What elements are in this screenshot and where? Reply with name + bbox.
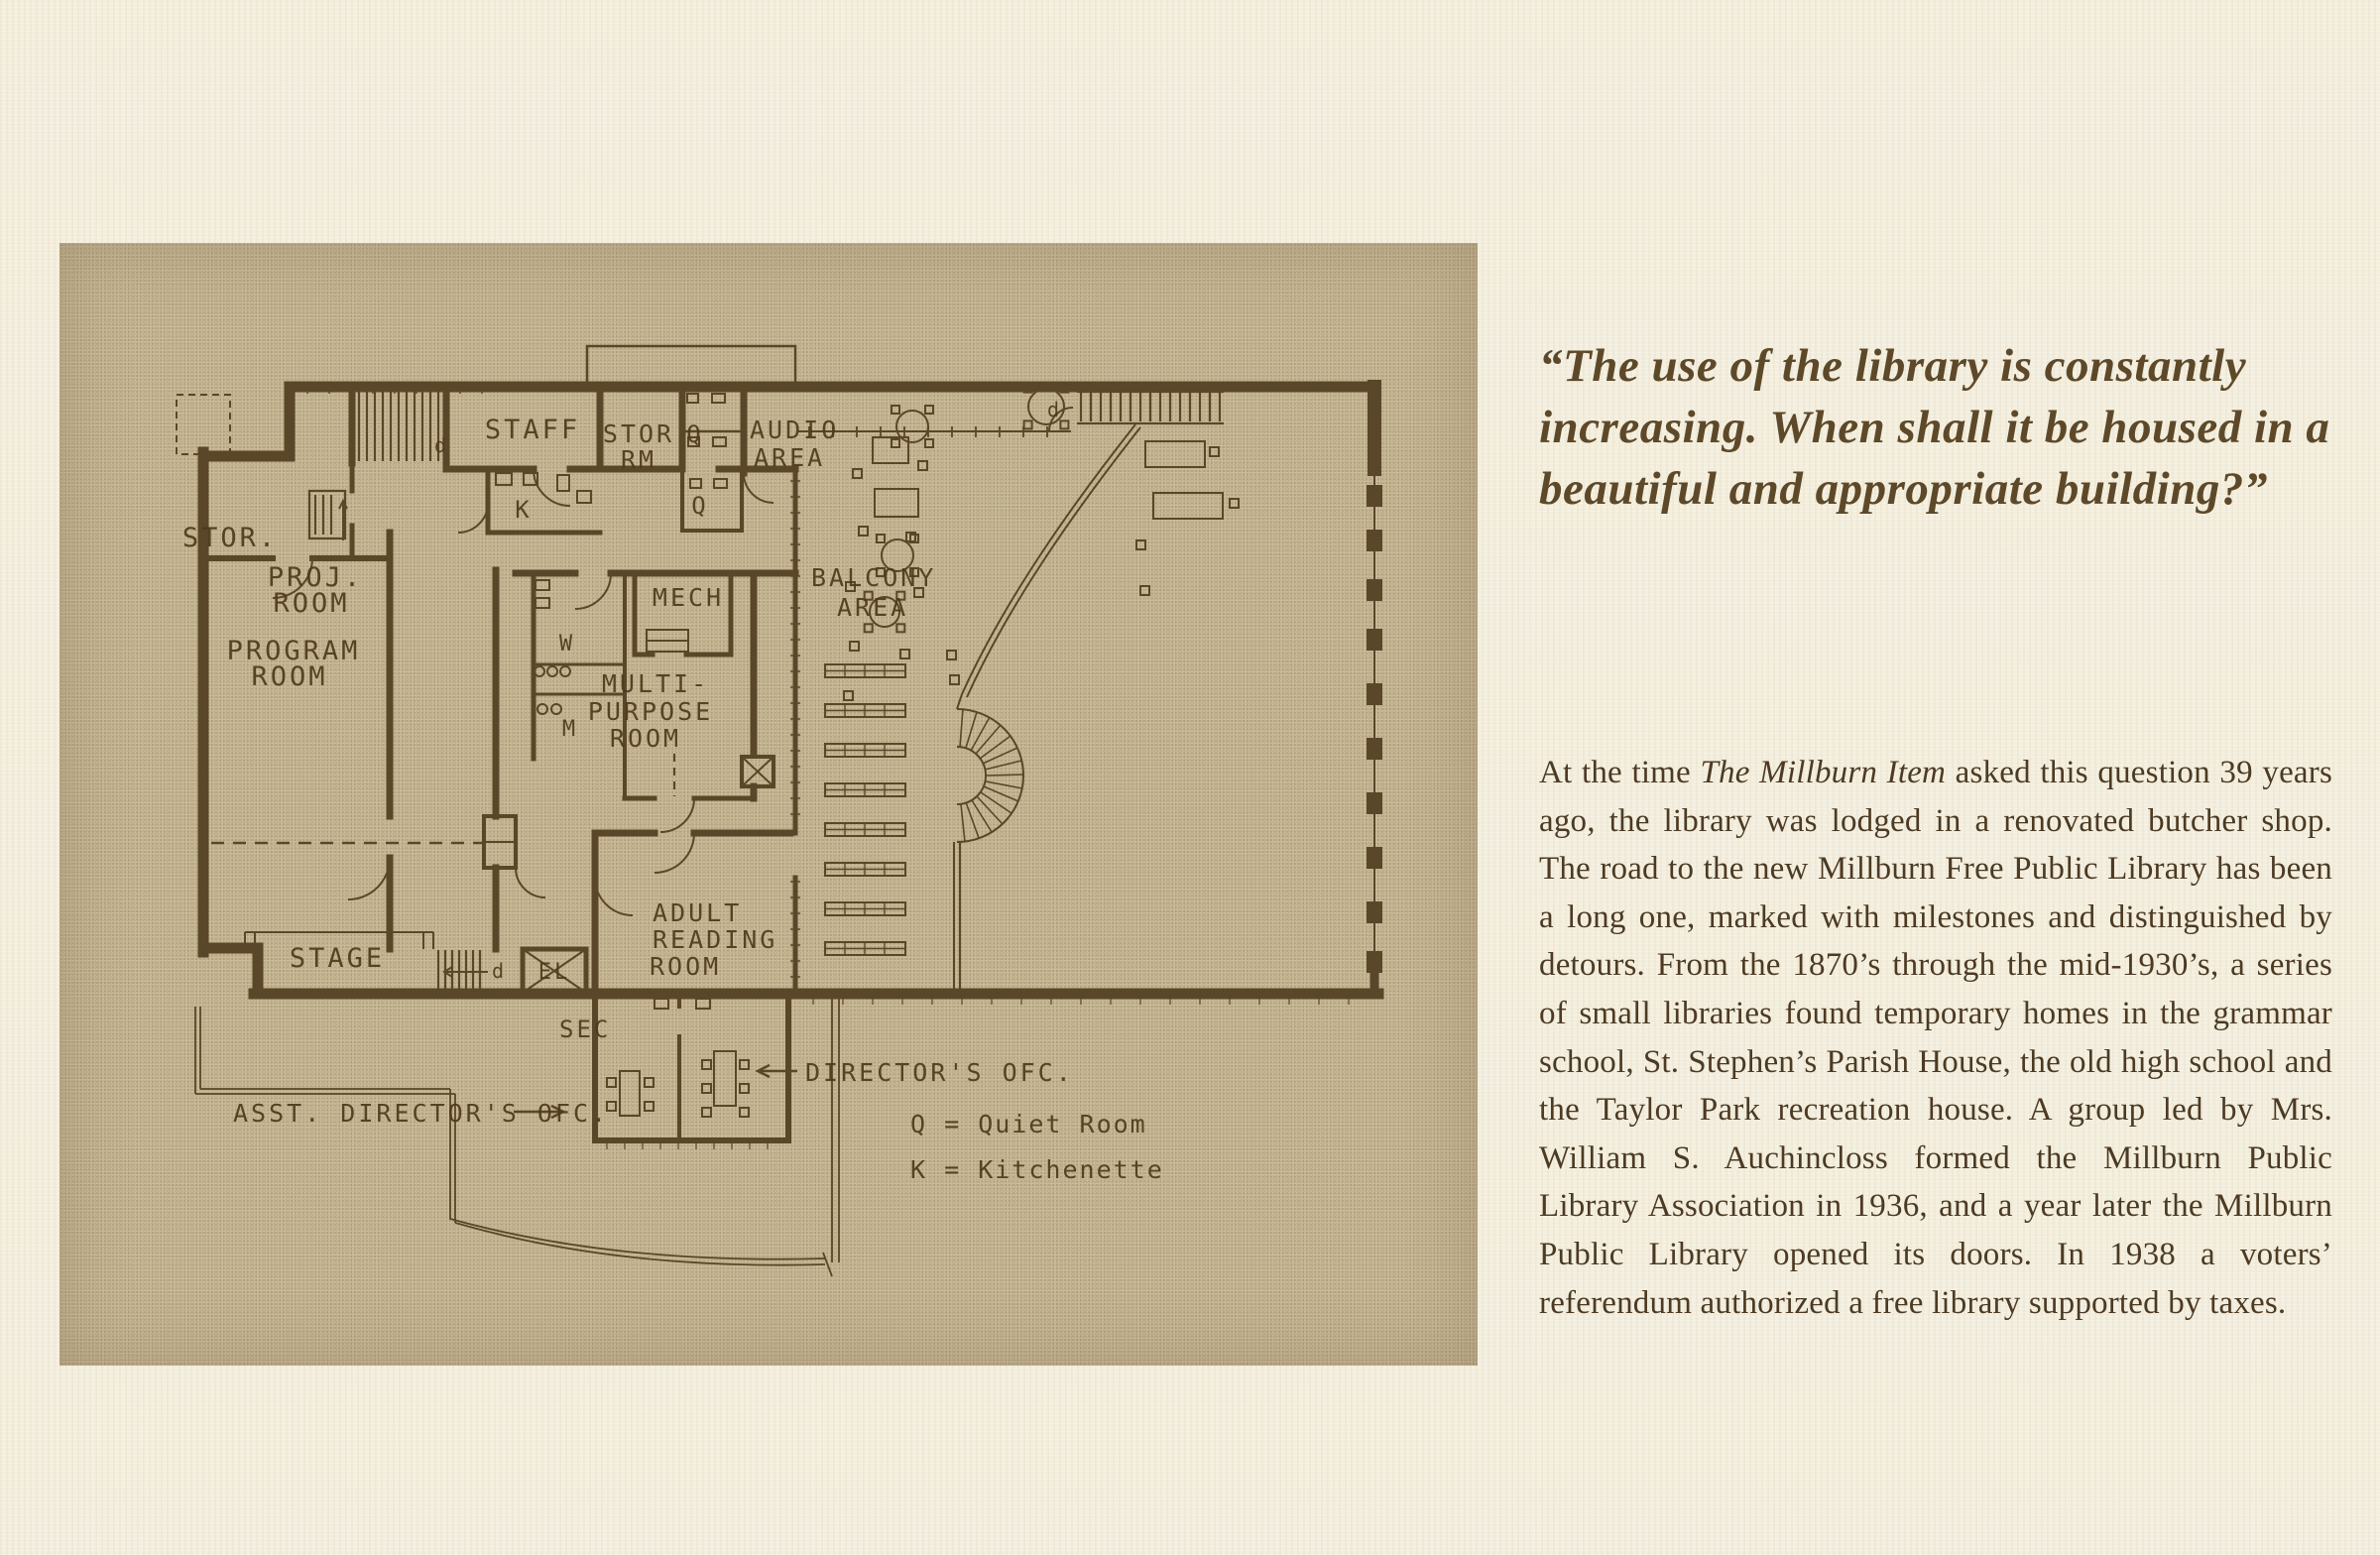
entry-steps-icon <box>1077 392 1224 423</box>
room-label: SEC <box>559 1016 611 1043</box>
toilet-fixture-icon <box>551 704 561 714</box>
room-label: ROOM <box>273 588 349 619</box>
chair-icon <box>702 1108 711 1117</box>
room-label: EL <box>538 960 571 985</box>
article-paragraph: At the time The Millburn Item asked this… <box>1539 749 2332 1327</box>
toilet-fixture-icon <box>560 666 570 676</box>
column-block <box>1368 739 1381 759</box>
book-stack-row <box>825 664 905 677</box>
chair-icon <box>702 1084 711 1093</box>
room-label: PURPOSE <box>588 697 713 726</box>
room-label: ADULT <box>653 898 742 927</box>
round-table-icon <box>892 406 933 447</box>
book-stack-row <box>825 744 905 757</box>
plan-legend: Q = Quiet RoomK = Kitchenette <box>910 1110 1164 1184</box>
column-block <box>1368 486 1381 506</box>
pull-quote: “The use of the library is constantly in… <box>1539 335 2368 520</box>
door-letter: d <box>434 433 446 457</box>
legend-line: Q = Quiet Room <box>910 1110 1147 1138</box>
book-stack-row <box>825 942 905 955</box>
elevator-shaft <box>742 757 773 786</box>
plan-outer-walls <box>203 387 1378 994</box>
chair-icon <box>607 1078 616 1087</box>
chair-icon <box>853 469 862 478</box>
article-rest: asked this question 39 years ago, the li… <box>1539 755 2332 1321</box>
room-label: Q <box>686 420 703 448</box>
chair-icon <box>645 1078 654 1087</box>
chair-icon <box>740 1060 749 1069</box>
legend-line: K = Kitchenette <box>910 1155 1164 1184</box>
chair-icon <box>900 650 909 658</box>
chair-icon <box>702 1060 711 1069</box>
room-label: STAGE <box>290 943 385 974</box>
room-label: AUDIO <box>750 416 839 444</box>
column-block <box>1368 630 1381 650</box>
balcony-edge-curve <box>954 424 1140 994</box>
floor-plan-drawing: STOR.PROJ.ROOMPROGRAMROOMSTAGESTAFFSTORR… <box>59 243 1478 1366</box>
desk-icon <box>1145 441 1205 467</box>
room-label: ASST. DIRECTOR'S OFC. <box>233 1099 609 1128</box>
room-label: K <box>515 496 532 524</box>
column-block <box>1368 684 1381 704</box>
room-label: ROOM <box>650 952 721 981</box>
main-stair-icon <box>359 390 438 461</box>
column-block <box>1368 848 1381 868</box>
terrace-walk <box>195 995 839 1276</box>
door-letter: d <box>492 959 504 983</box>
room-label: ROOM <box>251 661 327 692</box>
small-stair-icon <box>309 491 345 538</box>
toilet-fixture-icon <box>537 704 547 714</box>
chair-icon <box>645 1102 654 1111</box>
room-label: READING <box>653 925 777 954</box>
book-stack-row <box>825 704 905 717</box>
book-stack-row <box>825 783 905 796</box>
desk-icon <box>875 489 918 517</box>
room-label: STOR <box>603 419 674 448</box>
room-label: W <box>559 632 575 657</box>
chair-icon <box>918 461 927 470</box>
room-label: RM <box>621 445 656 474</box>
book-stack-row <box>825 823 905 836</box>
article-lead: At the time <box>1539 755 1700 790</box>
door-letter: d <box>1047 398 1059 421</box>
chair-icon <box>850 642 859 651</box>
room-label: STAFF <box>485 415 580 445</box>
desk-icon <box>714 1051 736 1106</box>
column-block <box>1368 952 1381 972</box>
toilet-fixture-icon <box>547 666 557 676</box>
chair-icon <box>947 651 956 659</box>
spiral-stair-icon <box>957 709 1023 842</box>
chair-icon <box>844 691 853 700</box>
chair-icon <box>1140 586 1149 595</box>
column-block <box>1368 580 1381 600</box>
room-label: MECH <box>653 583 724 612</box>
chair-icon <box>740 1108 749 1117</box>
room-label: BALCONY <box>811 563 936 592</box>
column-block <box>1368 902 1381 922</box>
scanned-page: { "colors":{"page_bg":"#f3eedd","panel_b… <box>0 0 2380 1555</box>
chair-icon <box>1210 447 1219 456</box>
desk-icon <box>1153 493 1223 519</box>
room-label: MULTI- <box>602 669 709 698</box>
staircases <box>309 390 1224 992</box>
book-stack-row <box>825 902 905 915</box>
floor-plan-panel: STOR.PROJ.ROOMPROGRAMROOMSTAGESTAFFSTORR… <box>59 243 1478 1366</box>
column-block <box>1368 531 1381 550</box>
chair-icon <box>859 527 868 536</box>
room-label: AREA <box>837 593 908 622</box>
chair-icon <box>740 1084 749 1093</box>
column-block <box>1368 793 1381 813</box>
room-label: STOR. <box>182 523 278 553</box>
room-label: Q <box>691 492 708 520</box>
chair-icon <box>950 675 959 684</box>
room-label: M <box>562 717 578 742</box>
chair-icon <box>1136 540 1145 549</box>
room-label: AREA <box>754 443 825 472</box>
book-stack-row <box>825 863 905 876</box>
desk-icon <box>620 1071 640 1116</box>
room-label: ROOM <box>610 724 681 753</box>
article-italic-title: The Millburn Item <box>1700 755 1946 790</box>
room-label: DIRECTOR'S OFC. <box>805 1058 1074 1087</box>
chair-icon <box>1230 499 1239 508</box>
